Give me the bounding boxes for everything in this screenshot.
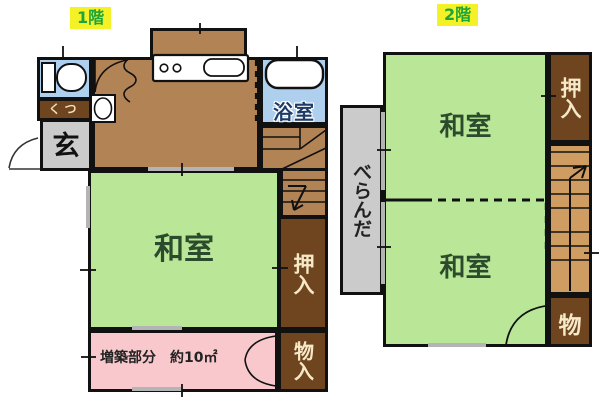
floor1-label: 1階	[70, 7, 111, 29]
kitchen-bay	[150, 28, 247, 60]
extension-label: 増築部分 約10㎡	[100, 347, 217, 367]
floor2-label: 2階	[437, 4, 478, 26]
closet-2f-label: 押入	[548, 58, 592, 138]
stairs-1f-lower	[280, 168, 328, 218]
tatami-2f-upper-label: 和室	[383, 106, 548, 143]
tatami-1f-label: 和室	[88, 224, 280, 268]
shoe-box-label: くつ	[37, 100, 92, 117]
floor-plan: 1階 2階 和室 和室 和室 玄 くつ 浴室 押入 物入 増築部分 約10㎡ べ…	[0, 0, 600, 413]
entrance-label: 玄	[40, 124, 92, 163]
entrance-door-arc	[9, 138, 40, 169]
bathroom-label: 浴室	[262, 96, 326, 125]
room-kitchen-hall	[92, 57, 260, 170]
closet-1f-label: 押入	[278, 226, 328, 322]
storage-1f-label: 物入	[278, 332, 328, 390]
room-tatami-2f	[383, 52, 548, 347]
veranda-label: べらんだ	[340, 114, 383, 286]
tatami-2f-lower-label: 和室	[383, 247, 548, 284]
stairs-1f-upper	[260, 125, 328, 171]
storage-2f-label: 物	[548, 306, 592, 340]
room-toilet	[37, 57, 92, 100]
stairs-2f	[548, 143, 592, 295]
